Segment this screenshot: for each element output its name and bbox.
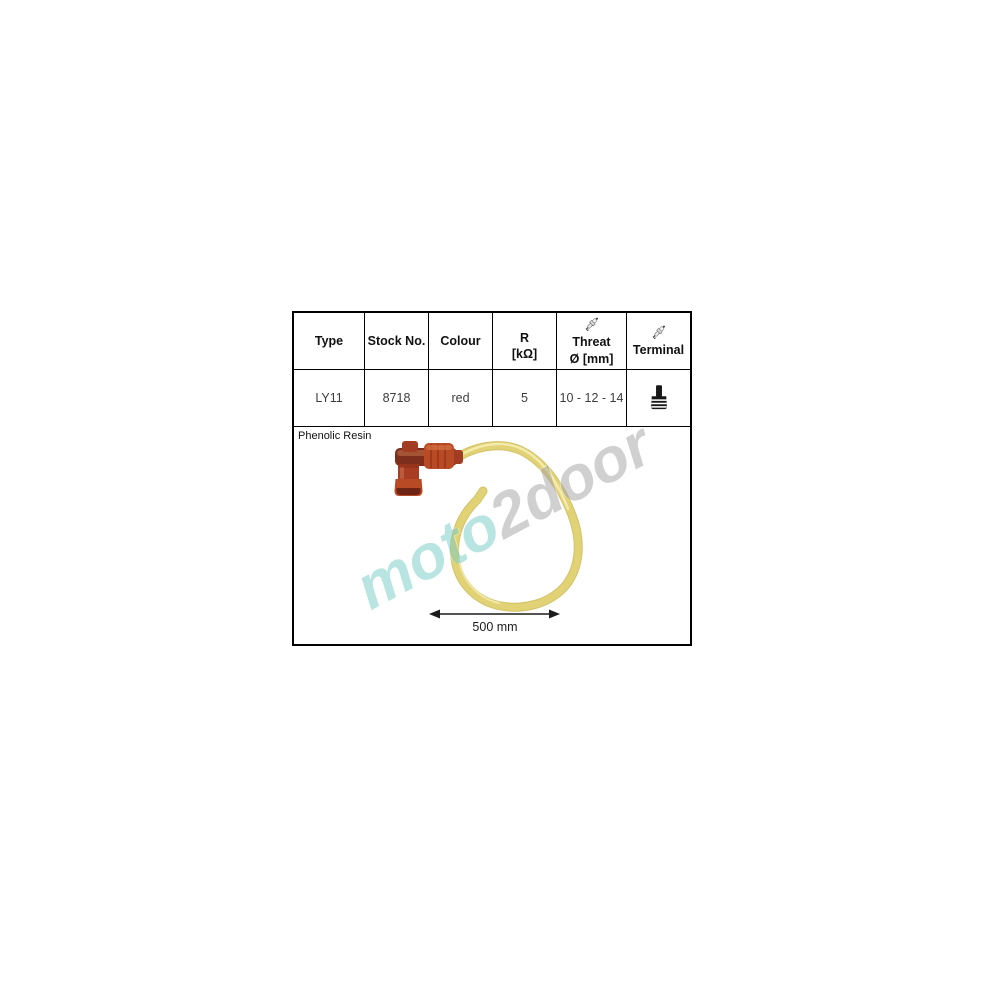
terminal-stud-icon <box>648 384 670 412</box>
stock-no-value: 8718 <box>383 391 411 405</box>
header-threat: Threat Ø [mm] <box>557 313 627 370</box>
header-type-label: Type <box>315 333 343 349</box>
colour-value: red <box>451 391 469 405</box>
header-terminal-label: Terminal <box>633 342 684 358</box>
spark-plug-icon <box>649 323 668 341</box>
resistance-value: 5 <box>521 391 528 405</box>
cell-colour: red <box>429 370 493 427</box>
ignition-wire <box>455 444 579 607</box>
header-resistance: R [kΩ] <box>493 313 557 370</box>
header-resistance-label: R <box>520 330 529 346</box>
product-spec-card: Type Stock No. Colour R [kΩ] Thr <box>292 311 692 646</box>
cell-resistance: 5 <box>493 370 557 427</box>
product-photo: 500 mm <box>294 427 690 644</box>
header-terminal: Terminal <box>627 313 690 370</box>
header-resistance-unit: [kΩ] <box>512 346 537 362</box>
header-stock-no-label: Stock No. <box>368 333 426 349</box>
header-colour: Colour <box>429 313 493 370</box>
threat-value: 10 - 12 - 14 <box>560 391 624 405</box>
header-threat-label: Threat <box>572 334 610 350</box>
cell-threat: 10 - 12 - 14 <box>557 370 627 427</box>
spark-plug-icon <box>582 315 601 333</box>
header-type: Type <box>294 313 365 370</box>
cell-type: LY11 <box>294 370 365 427</box>
material-note: Phenolic Resin <box>298 430 371 442</box>
dimension-arrow <box>429 610 560 619</box>
cell-stock-no: 8718 <box>365 370 429 427</box>
type-value: LY11 <box>315 391 342 405</box>
cell-terminal <box>627 370 690 427</box>
header-colour-label: Colour <box>440 333 480 349</box>
spec-table: Type Stock No. Colour R [kΩ] Thr <box>294 313 690 427</box>
spark-plug-cap <box>395 441 464 496</box>
dimension-label: 500 mm <box>472 620 517 634</box>
header-stock-no: Stock No. <box>365 313 429 370</box>
header-threat-unit: Ø [mm] <box>570 351 614 367</box>
